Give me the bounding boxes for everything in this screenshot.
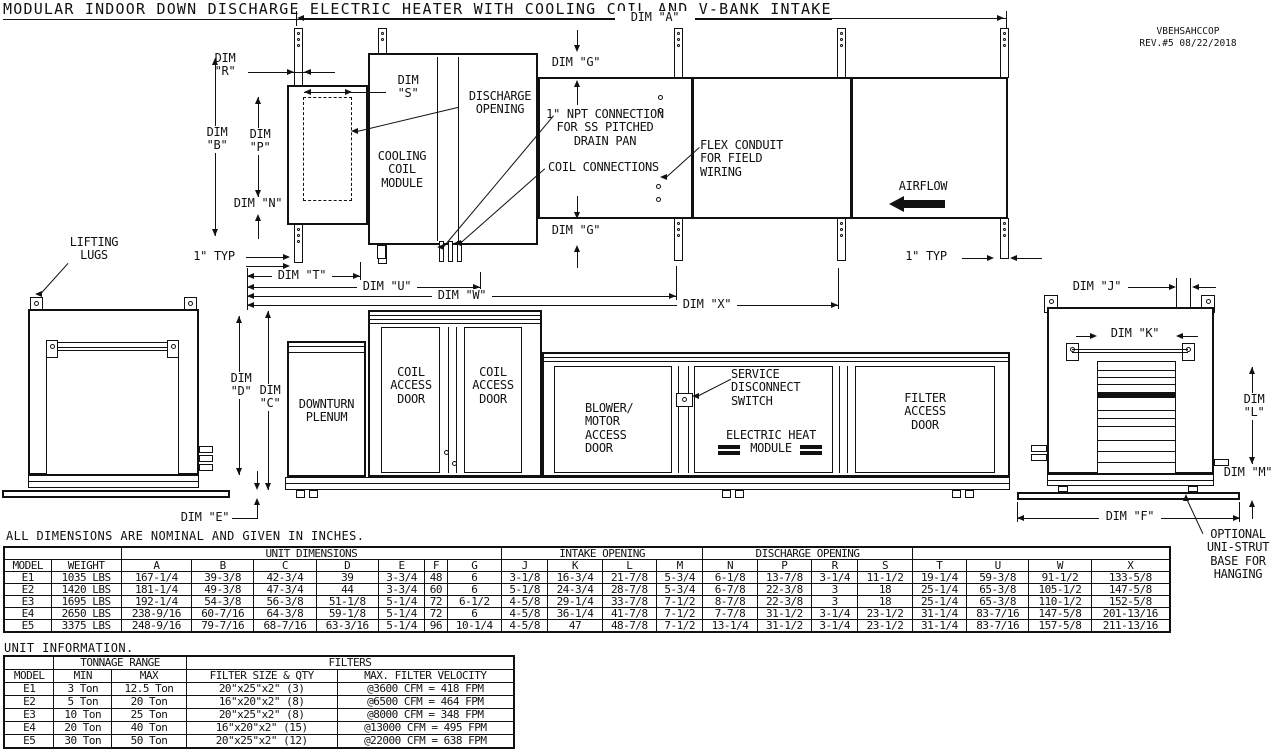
table-cell: 59-3/8 (967, 572, 1029, 584)
lifting-lug (46, 340, 58, 358)
drain-stub (377, 245, 386, 259)
table-cell: E3 (4, 596, 51, 608)
arrowhead (987, 255, 994, 261)
dim-b-label: DIM "B" (198, 126, 236, 153)
table-cell: 25 Ton (112, 709, 187, 722)
table-cell: 13-1/4 (703, 620, 757, 633)
table-cell: 39-3/8 (192, 572, 254, 584)
hanger-channel (1176, 278, 1177, 308)
table-cell: 31-1/2 (757, 608, 811, 620)
table-cell: 22-3/8 (757, 596, 811, 608)
arrowhead (254, 483, 260, 490)
table-column-header: FILTER SIZE & QTY (186, 670, 337, 683)
channel-bracket (294, 224, 303, 263)
table-cell: 48 (425, 572, 447, 584)
door-post (456, 327, 457, 473)
dim-j-label: DIM "J" (1068, 280, 1126, 293)
crossbar (58, 350, 167, 351)
coil-stub (199, 455, 213, 462)
table-cell: 25-1/4 (912, 584, 966, 596)
dim-c-label: DIM "C" (251, 384, 289, 411)
table-column-header: MODEL (4, 560, 51, 572)
table-cell: 16"x20"x2" (8) (186, 696, 337, 709)
arrowhead (1249, 367, 1255, 374)
table-column-header: N (703, 560, 757, 572)
arrowhead (1017, 515, 1024, 521)
dim-line (962, 258, 988, 259)
table-cell: 65-3/8 (967, 584, 1029, 596)
table-row: E53375 LBS248-9/1679-7/1668-7/1663-3/165… (4, 620, 1170, 633)
foot (309, 490, 318, 498)
arrowhead (437, 244, 444, 250)
dim-r-label: DIM "R" (205, 52, 245, 79)
table-cell: 16-3/4 (548, 572, 602, 584)
channel-bracket (1000, 218, 1009, 259)
table-cell: 6-1/2 (447, 596, 501, 608)
table-cell: @8000 CFM = 348 FPM (337, 709, 514, 722)
table-cell: @6500 CFM = 464 FPM (337, 696, 514, 709)
dim-t-label: DIM "T" (272, 269, 332, 282)
arrowhead (351, 128, 358, 134)
table-cell: 60-7/16 (192, 608, 254, 620)
table-cell: 59-1/8 (316, 608, 378, 620)
table-cell: 3-3/4 (378, 572, 424, 584)
table-group-header: TONNAGE RANGE (54, 656, 186, 670)
arrowhead (574, 212, 580, 219)
table-cell: 5-1/4 (378, 620, 424, 633)
downturn-plenum-label: DOWNTURN PLENUM (289, 398, 364, 425)
table-cell: 47-3/4 (254, 584, 316, 596)
table-column-header: K (548, 560, 602, 572)
module-divider (437, 57, 438, 241)
panel-line (542, 361, 1010, 362)
table-cell: 6 (447, 572, 501, 584)
table-cell: 5-1/4 (378, 596, 424, 608)
table-cell: 3-1/4 (812, 572, 858, 584)
table-column-header: MODEL (4, 670, 54, 683)
model-code: VBEHSAHCCOP (1108, 26, 1268, 38)
foot (965, 490, 974, 498)
table-cell: 157-5/8 (1029, 620, 1091, 633)
table-cell: 3 Ton (54, 683, 112, 696)
rail-line (285, 483, 1010, 484)
dim-n-line (258, 221, 259, 239)
table-cell: 20"x25"x2" (8) (186, 709, 337, 722)
table-row: E530 Ton50 Ton20"x25"x2" (12)@22000 CFM … (4, 735, 514, 749)
door-post (688, 366, 689, 473)
table-cell: E1 (4, 572, 51, 584)
table-cell: 40 Ton (112, 722, 187, 735)
unistrut-note: OPTIONAL UNI-STRUT BASE FOR HANGING (1196, 528, 1280, 582)
panel-line (542, 357, 1010, 358)
table-cell: 72 (425, 596, 447, 608)
table-cell: 3375 LBS (51, 620, 121, 633)
channel-bracket (674, 218, 683, 261)
table-cell: 21-7/8 (602, 572, 656, 584)
table-cell: 6 (447, 608, 501, 620)
table-cell: 63-3/16 (316, 620, 378, 633)
dim-line (246, 266, 283, 267)
rack-line (1097, 377, 1176, 378)
table-group-header: DISCHARGE OPENING (703, 547, 912, 560)
channel-bracket (1000, 28, 1009, 78)
table-group-header: INTAKE OPENING (501, 547, 702, 560)
table-cell: E2 (4, 584, 51, 596)
dim-g-line (577, 196, 578, 212)
table-cell: 6-1/8 (703, 572, 757, 584)
table-row: E420 Ton40 Ton16"x20"x2" (15)@13000 CFM … (4, 722, 514, 735)
leader-line (232, 518, 257, 519)
arrowhead (454, 240, 461, 246)
table-column-header: F (425, 560, 447, 572)
table-cell: 3-1/4 (812, 620, 858, 633)
arrowhead (1183, 494, 1189, 501)
arrowhead (254, 498, 260, 505)
extension-line (296, 11, 297, 26)
dim-k-line (1182, 336, 1198, 337)
lug-hole (1206, 299, 1211, 304)
discharge-opening-dashed (303, 97, 352, 201)
table-column-header: S (858, 560, 912, 572)
arrowhead (574, 80, 580, 87)
rack-line (1097, 440, 1176, 441)
table-column-header: B (192, 560, 254, 572)
coil-access-door-label: COIL ACCESS DOOR (383, 366, 439, 406)
heating-element-icon (718, 445, 740, 449)
dimensions-note: ALL DIMENSIONS ARE NOMINAL AND GIVEN IN … (6, 529, 364, 543)
table-cell: 83-7/16 (967, 620, 1029, 633)
arrowhead (1090, 333, 1097, 339)
table-group-header: UNIT DIMENSIONS (121, 547, 501, 560)
table-cell: 3 (812, 596, 858, 608)
table-column-header: C (254, 560, 316, 572)
table-column-header: MAX (112, 670, 187, 683)
dim-g-label: DIM "G" (542, 56, 610, 69)
arrowhead (247, 293, 254, 299)
table-row: E31695 LBS192-1/454-3/856-3/851-1/85-1/4… (4, 596, 1170, 608)
door-handle (452, 461, 457, 466)
dim-w-label: DIM "W" (432, 289, 492, 302)
dim-m-line (1252, 507, 1253, 519)
dim-e-line (257, 505, 258, 519)
table-cell: 25-1/4 (912, 596, 966, 608)
door-post (847, 366, 848, 473)
arrowhead (247, 302, 254, 308)
table-row: E13 Ton12.5 Ton20"x25"x2" (3)@3600 CFM =… (4, 683, 514, 696)
arrowhead (265, 483, 271, 490)
table-cell: 13-7/8 (757, 572, 811, 584)
flex-conduit-note: FLEX CONDUIT FOR FIELD WIRING (700, 139, 804, 179)
lug-hole (34, 301, 39, 306)
left-end-inner-panel (46, 342, 179, 475)
table-cell: 12.5 Ton (112, 683, 187, 696)
table-cell: 16"x20"x2" (15) (186, 722, 337, 735)
table-cell: 7-1/2 (656, 620, 702, 633)
intake-section-outline (851, 77, 1008, 219)
coil-connection-dot (656, 197, 661, 202)
rack-line (1097, 370, 1176, 371)
filter-access-door-label: FILTER ACCESS DOOR (893, 392, 957, 432)
table-cell: @22000 CFM = 638 FPM (337, 735, 514, 749)
arrowhead (255, 97, 261, 104)
table-cell: 5-3/4 (656, 572, 702, 584)
arrowhead (304, 89, 311, 95)
npt-connection-note: 1" NPT CONNECTION FOR SS PITCHED DRAIN P… (540, 108, 670, 148)
table-cell: E5 (4, 735, 54, 749)
dim-f-label: DIM "F" (1099, 510, 1161, 523)
table-cell: 4-5/8 (501, 608, 547, 620)
table-cell: E3 (4, 709, 54, 722)
panel-line (368, 315, 542, 316)
lug-hole (188, 301, 193, 306)
table-cell: 133-5/8 (1091, 572, 1170, 584)
table-cell: 1035 LBS (51, 572, 121, 584)
drawing-title: MODULAR INDOOR DOWN DISCHARGE ELECTRIC H… (3, 0, 832, 20)
arrowhead (1010, 255, 1017, 261)
arrowhead (353, 273, 360, 279)
arrowhead (283, 254, 290, 260)
dim-p-label: DIM "P" (241, 128, 279, 155)
table-column-header: W (1029, 560, 1091, 572)
table-cell: 3 (812, 584, 858, 596)
table-cell: 68-7/16 (254, 620, 316, 633)
dim-x-line (247, 305, 838, 306)
title-block: VBEHSAHCCOP REV.#5 08/22/2018 (1108, 26, 1268, 50)
one-typ-label: 1" TYP (898, 250, 954, 263)
table-cell: 29-1/4 (548, 596, 602, 608)
leader-line (40, 263, 69, 295)
table-cell: 11-1/2 (858, 572, 912, 584)
table-row: E11035 LBS167-1/439-3/842-3/4393-3/44863… (4, 572, 1170, 584)
table-cell: 20"x25"x2" (12) (186, 735, 337, 749)
table-cell: 6 (447, 584, 501, 596)
table-column-header: A (121, 560, 191, 572)
airflow-arrow (903, 200, 945, 208)
unit-information-title: UNIT INFORMATION. (4, 641, 134, 655)
table-cell: 152-5/8 (1091, 596, 1170, 608)
discharge-opening-label: DISCHARGE OPENING (460, 90, 540, 117)
arrowhead (831, 302, 838, 308)
base-plate (2, 490, 230, 498)
table-column-header: M (656, 560, 702, 572)
table-cell: 18 (858, 596, 912, 608)
table-cell: 50 Ton (112, 735, 187, 749)
table-cell: 48-7/8 (602, 620, 656, 633)
arrowhead (1192, 284, 1199, 290)
table-cell: 20 Ton (112, 696, 187, 709)
table-cell: 56-3/8 (254, 596, 316, 608)
door-post (839, 366, 840, 473)
dim-a-label: DIM "A" (615, 11, 695, 24)
table-cell: 65-3/8 (967, 596, 1029, 608)
drawing-sheet: MODULAR INDOOR DOWN DISCHARGE ELECTRIC H… (0, 0, 1280, 752)
rack-line (1097, 418, 1176, 419)
table-column-header: D (316, 560, 378, 572)
table-cell: 96 (425, 620, 447, 633)
arrowhead (345, 89, 352, 95)
table-cell: 20 Ton (54, 722, 112, 735)
table-cell: 20"x25"x2" (3) (186, 683, 337, 696)
drain-pipe (448, 241, 453, 262)
base-plate (1017, 492, 1240, 500)
foot (722, 490, 731, 498)
arrowhead (574, 245, 580, 252)
table-group-header (4, 547, 121, 560)
table-cell: 5 Ton (54, 696, 112, 709)
dim-e-label: DIM "E" (176, 511, 234, 524)
dim-l-label: DIM "L" (1235, 393, 1273, 420)
extension-line (360, 262, 361, 280)
table-cell: 31-1/4 (912, 620, 966, 633)
dim-g-line (577, 87, 578, 105)
table-cell: E4 (4, 722, 54, 735)
hanger-channel (1190, 278, 1191, 308)
table-cell: 54-3/8 (192, 596, 254, 608)
table-cell: 7-1/2 (656, 596, 702, 608)
coil-access-door-label: COIL ACCESS DOOR (465, 366, 521, 406)
table-column-header: G (447, 560, 501, 572)
table-cell: 5-3/4 (656, 584, 702, 596)
table-cell: E2 (4, 696, 54, 709)
table-group-header (912, 547, 1170, 560)
table-cell: 31-1/4 (912, 608, 966, 620)
arrowhead (247, 273, 254, 279)
panel-line (287, 346, 366, 347)
extension-line (838, 268, 839, 309)
arrowhead (1233, 515, 1240, 521)
table-row: E42650 LBS238-9/1660-7/1664-3/859-1/85-1… (4, 608, 1170, 620)
table-cell: 1695 LBS (51, 596, 121, 608)
foot (952, 490, 961, 498)
coil-connection-dot (656, 184, 661, 189)
arrowhead (265, 311, 271, 318)
rack-line (1097, 462, 1176, 463)
table-cell: 3-1/4 (812, 608, 858, 620)
table-row: E310 Ton25 Ton20"x25"x2" (8)@8000 CFM = … (4, 709, 514, 722)
channel-bracket (378, 28, 387, 54)
table-cell: @13000 CFM = 495 FPM (337, 722, 514, 735)
table-cell: 24-3/4 (548, 584, 602, 596)
table-column-header: MAX. FILTER VELOCITY (337, 670, 514, 683)
revision-text: REV.#5 08/22/2018 (1108, 38, 1268, 50)
dim-line (246, 257, 283, 258)
dim-j-line (1128, 287, 1173, 288)
arrowhead (1176, 333, 1183, 339)
dim-x-label: DIM "X" (677, 298, 737, 311)
table-cell: 23-1/2 (858, 608, 912, 620)
dim-line (1016, 258, 1042, 259)
table-cell: 10 Ton (54, 709, 112, 722)
arrowhead (236, 468, 242, 475)
table-cell: 79-7/16 (192, 620, 254, 633)
crossbar (58, 347, 167, 348)
table-cell: 5-1/4 (378, 608, 424, 620)
table-column-header: R (812, 560, 858, 572)
foot (296, 490, 305, 498)
channel-bracket (837, 218, 846, 261)
leader-line (1186, 497, 1204, 534)
table-cell: 147-5/8 (1029, 608, 1091, 620)
arrowhead (692, 393, 699, 399)
unit-dimensions-table: UNIT DIMENSIONSINTAKE OPENINGDISCHARGE O… (3, 546, 1171, 633)
coil-connection-dot (658, 95, 663, 100)
table-cell: 238-9/16 (121, 608, 191, 620)
table-cell: 110-1/2 (1029, 596, 1091, 608)
table-column-header: J (501, 560, 547, 572)
lug-hole (171, 344, 176, 349)
lug-hole (50, 344, 55, 349)
arrowhead (1249, 500, 1255, 507)
table-cell: 41-7/8 (602, 608, 656, 620)
table-cell: 3-3/4 (378, 584, 424, 596)
rail-line (28, 481, 199, 482)
table-cell: 33-7/8 (602, 596, 656, 608)
foot (735, 490, 744, 498)
table-cell: 36-1/4 (548, 608, 602, 620)
extension-line (676, 266, 677, 300)
dim-s-label: DIM "S" (386, 74, 430, 101)
table-cell: 248-9/16 (121, 620, 191, 633)
coil-stub (1031, 445, 1047, 452)
table-cell: 42-3/4 (254, 572, 316, 584)
panel-line (287, 352, 366, 353)
table-cell: 18 (858, 584, 912, 596)
arrowhead (255, 214, 261, 221)
coil-stub (199, 464, 213, 471)
panel-line (368, 319, 542, 320)
arrowhead (997, 15, 1004, 21)
table-row: E25 Ton20 Ton16"x20"x2" (8)@6500 CFM = 4… (4, 696, 514, 709)
dim-g-line (577, 30, 578, 46)
table-cell: 7-7/8 (703, 608, 757, 620)
arrowhead (1249, 457, 1255, 464)
airflow-arrowhead (889, 196, 904, 212)
service-disconnect-label: SERVICE DISCONNECT SWITCH (731, 368, 831, 408)
door-handle (444, 450, 449, 455)
arrowhead (304, 69, 311, 75)
table-column-header: T (912, 560, 966, 572)
table-cell: 60 (425, 584, 447, 596)
rack-band (1097, 392, 1176, 398)
table-cell: 4-5/8 (501, 596, 547, 608)
table-cell: 19-1/4 (912, 572, 966, 584)
rack-line (1097, 410, 1176, 411)
arrowhead (236, 316, 242, 323)
heating-element-icon (800, 451, 822, 455)
dim-e-line (257, 471, 258, 483)
dim-g-line (577, 252, 578, 268)
table-column-header: U (967, 560, 1029, 572)
arrowhead (247, 284, 254, 290)
table-cell: 83-7/16 (967, 608, 1029, 620)
arrowhead (574, 45, 580, 52)
table-cell: 47 (548, 620, 602, 633)
arrowhead (287, 69, 294, 75)
table-cell: 2650 LBS (51, 608, 121, 620)
lifting-lug (167, 340, 179, 358)
table-cell: 64-3/8 (254, 608, 316, 620)
heating-element-icon (800, 445, 822, 449)
airflow-label: AIRFLOW (893, 180, 953, 193)
dim-m-label: DIM "M" (1218, 466, 1278, 479)
rack-line (1097, 451, 1176, 452)
channel-bracket (674, 28, 683, 78)
blower-motor-label: BLOWER/ MOTOR ACCESS DOOR (585, 402, 675, 456)
rack-line (1097, 384, 1176, 385)
table-cell: 30 Ton (54, 735, 112, 749)
table-cell: 7-1/2 (656, 608, 702, 620)
table-cell: 192-1/4 (121, 596, 191, 608)
